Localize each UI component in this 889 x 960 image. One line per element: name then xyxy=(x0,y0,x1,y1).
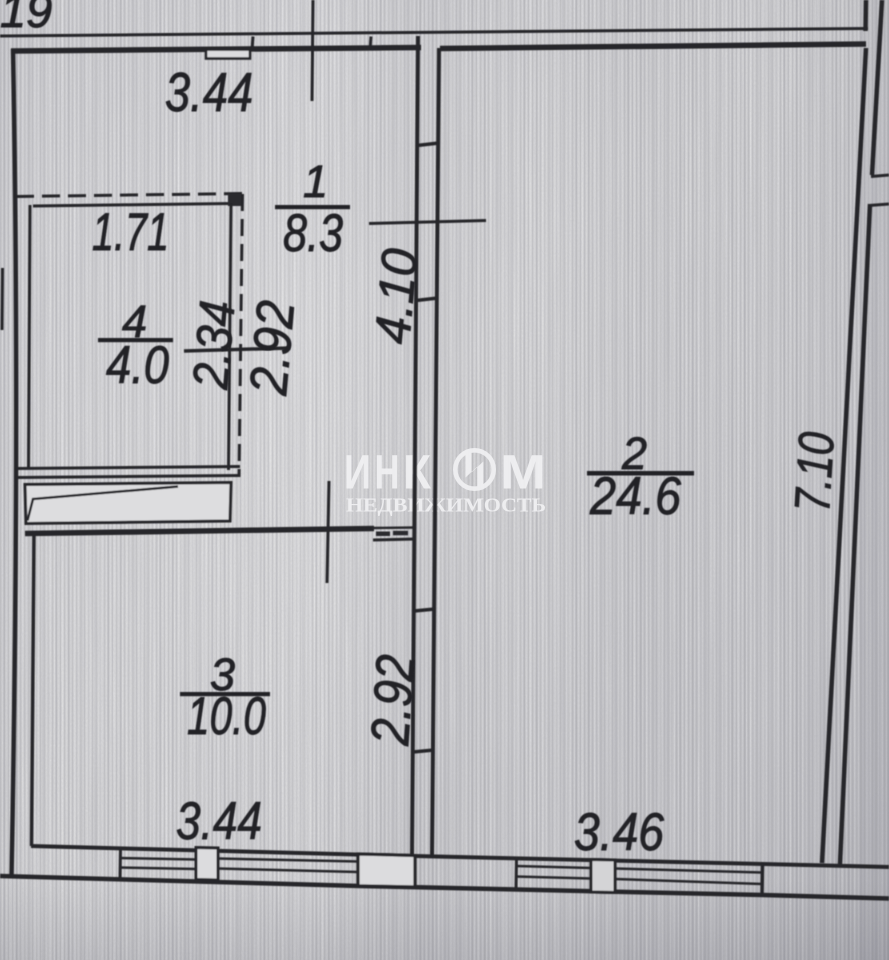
svg-text:Н: Н xyxy=(375,447,400,500)
svg-text:10.0: 10.0 xyxy=(187,687,266,746)
svg-text:8.3: 8.3 xyxy=(283,204,343,263)
svg-text:К: К xyxy=(403,447,432,500)
svg-text:2.34: 2.34 xyxy=(182,298,246,391)
svg-text:19: 19 xyxy=(0,0,52,37)
svg-text:3.44: 3.44 xyxy=(176,792,262,851)
svg-text:7.10: 7.10 xyxy=(784,430,845,513)
svg-text:1.71: 1.71 xyxy=(92,203,169,262)
svg-text:1: 1 xyxy=(303,156,328,207)
svg-text:НЕДВИЖИМОСТЬ: НЕДВИЖИМОСТЬ xyxy=(346,495,546,517)
svg-text:3.46: 3.46 xyxy=(574,803,664,862)
svg-text:4.0: 4.0 xyxy=(106,336,169,395)
svg-text:4.10: 4.10 xyxy=(364,246,428,346)
svg-text:2.92: 2.92 xyxy=(239,298,306,398)
svg-text:М: М xyxy=(500,447,546,500)
svg-text:И: И xyxy=(344,447,371,500)
svg-text:3.44: 3.44 xyxy=(165,61,253,123)
svg-text:24.6: 24.6 xyxy=(589,467,681,526)
svg-text:2.92: 2.92 xyxy=(360,653,426,748)
